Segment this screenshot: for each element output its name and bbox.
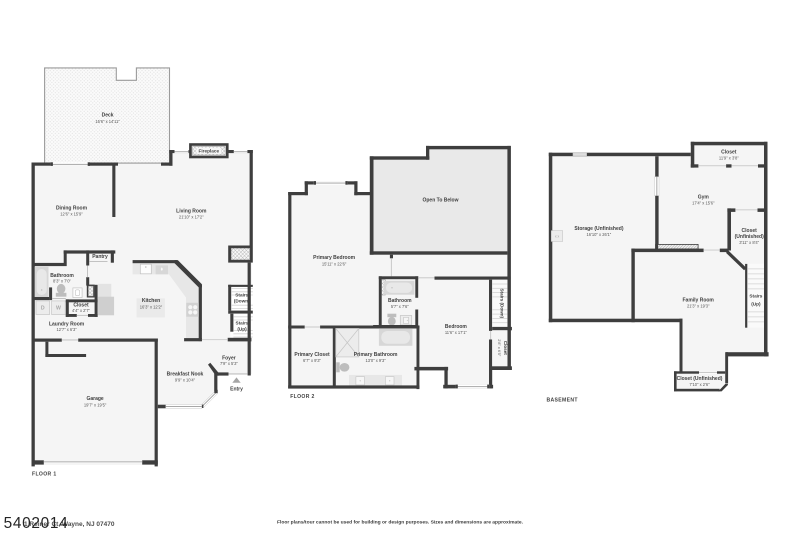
svg-text:8'3" x 7'0": 8'3" x 7'0" — [53, 279, 71, 284]
svg-text:Fireplace: Fireplace — [199, 149, 220, 154]
svg-text:Kitchen: Kitchen — [142, 298, 160, 304]
svg-text:13'0" x 9'3": 13'0" x 9'3" — [366, 358, 387, 363]
svg-text:Closet: Closet — [503, 341, 508, 356]
svg-text:Open To Below: Open To Below — [422, 198, 458, 204]
svg-text:16'3" x 12'2": 16'3" x 12'2" — [140, 305, 163, 310]
svg-text:BASEMENT: BASEMENT — [547, 397, 579, 403]
svg-text:Floor plans/tour cannot be use: Floor plans/tour cannot be used for buil… — [277, 520, 524, 526]
svg-text:D: D — [41, 306, 45, 312]
svg-text:Dining Room: Dining Room — [56, 205, 88, 211]
svg-text:Pantry: Pantry — [92, 254, 108, 260]
svg-text:5402014: 5402014 — [4, 515, 69, 532]
svg-text:Living Room: Living Room — [176, 208, 207, 214]
svg-text:Stairs: Stairs — [235, 292, 248, 297]
svg-text:Primary Bedroom: Primary Bedroom — [313, 255, 356, 261]
svg-text:3'11" x 8'4": 3'11" x 8'4" — [739, 240, 759, 245]
svg-text:11'6" x 17'1": 11'6" x 17'1" — [445, 330, 468, 335]
svg-text:5'7" x 7'6": 5'7" x 7'6" — [391, 304, 409, 309]
svg-text:9'9" x 10'4": 9'9" x 10'4" — [175, 378, 196, 383]
svg-text:17'4" x 15'6": 17'4" x 15'6" — [692, 201, 715, 206]
svg-text:19'7" x 19'5": 19'7" x 19'5" — [84, 403, 107, 408]
svg-text:15'6" x 14'11": 15'6" x 14'11" — [95, 119, 120, 124]
svg-text:21'3" x 19'3": 21'3" x 19'3" — [687, 304, 710, 309]
svg-text:11'9" x 3'8": 11'9" x 3'8" — [719, 156, 739, 161]
svg-text:W: W — [56, 306, 61, 312]
svg-text:2'8" x 6'5": 2'8" x 6'5" — [497, 339, 502, 357]
svg-text:7'9" x 5'3": 7'9" x 5'3" — [220, 361, 238, 366]
svg-text:6'7" x 9'3": 6'7" x 9'3" — [303, 358, 321, 363]
svg-text:Entry: Entry — [230, 386, 243, 392]
svg-text:Stairs: Stairs — [749, 294, 762, 299]
svg-text:FLOOR 2: FLOOR 2 — [290, 394, 315, 400]
svg-text:Deck: Deck — [102, 113, 114, 119]
svg-text:16'10" x 26'1": 16'10" x 26'1" — [587, 232, 612, 237]
svg-text:15'11" x 22'6": 15'11" x 22'6" — [322, 261, 347, 266]
svg-text:Stairs: Stairs — [235, 321, 248, 326]
svg-text:12'6" x 15'9": 12'6" x 15'9" — [60, 212, 83, 217]
svg-text:(Up): (Up) — [237, 327, 247, 332]
svg-text:Garage: Garage — [86, 396, 103, 402]
svg-text:FLOOR 1: FLOOR 1 — [32, 472, 57, 478]
svg-text:Stairs (Down): Stairs (Down) — [500, 288, 505, 318]
svg-text:21'10" x 17'2": 21'10" x 17'2" — [179, 215, 204, 220]
svg-text:x x: x x — [555, 235, 560, 239]
svg-text:12'7" x 6'3": 12'7" x 6'3" — [57, 327, 78, 332]
svg-text:4'4" x 2'7": 4'4" x 2'7" — [72, 308, 90, 313]
svg-text:7'10" x 2'6": 7'10" x 2'6" — [689, 382, 710, 387]
svg-text:(Up): (Up) — [751, 302, 761, 307]
